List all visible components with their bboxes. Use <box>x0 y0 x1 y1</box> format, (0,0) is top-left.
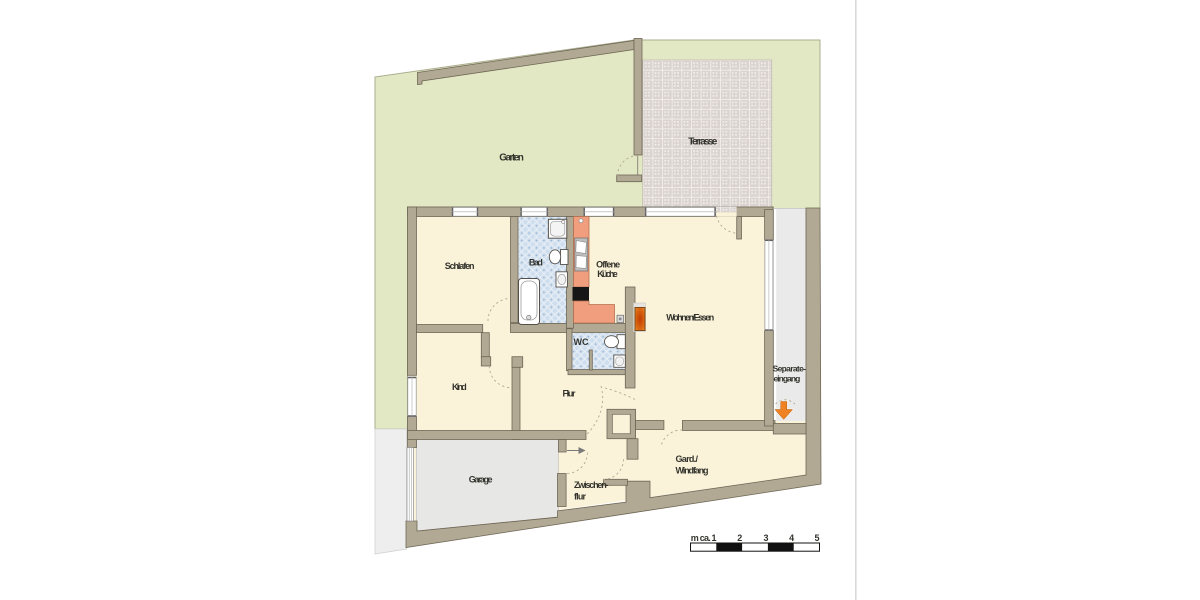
svg-text:Separate-: Separate- <box>773 364 807 374</box>
svg-text:Wohnen/Essen: Wohnen/Essen <box>666 313 714 323</box>
svg-text:4: 4 <box>789 533 794 543</box>
svg-text:3: 3 <box>763 533 768 543</box>
svg-text:Gard./: Gard./ <box>676 454 699 464</box>
svg-text:5: 5 <box>814 533 819 543</box>
svg-text:Garage: Garage <box>469 475 493 485</box>
svg-text:Küche: Küche <box>597 269 618 279</box>
svg-text:WC: WC <box>574 337 590 347</box>
svg-text:Terrasse: Terrasse <box>688 136 717 147</box>
svg-text:Schlafen: Schlafen <box>445 261 475 271</box>
svg-text:eingang: eingang <box>774 373 801 383</box>
svg-text:flur: flur <box>574 492 586 502</box>
svg-text:Garten: Garten <box>499 153 524 164</box>
svg-text:Offene: Offene <box>596 260 620 270</box>
svg-text:2: 2 <box>737 533 742 543</box>
svg-text:Flur: Flur <box>563 389 576 399</box>
svg-text:Kind: Kind <box>452 382 467 392</box>
svg-text:1: 1 <box>711 533 716 543</box>
svg-text:Zwischen-: Zwischen- <box>574 480 609 490</box>
svg-text:m ca.: m ca. <box>691 533 711 543</box>
svg-text:Bad: Bad <box>529 257 543 267</box>
svg-text:Windfang: Windfang <box>676 466 709 476</box>
